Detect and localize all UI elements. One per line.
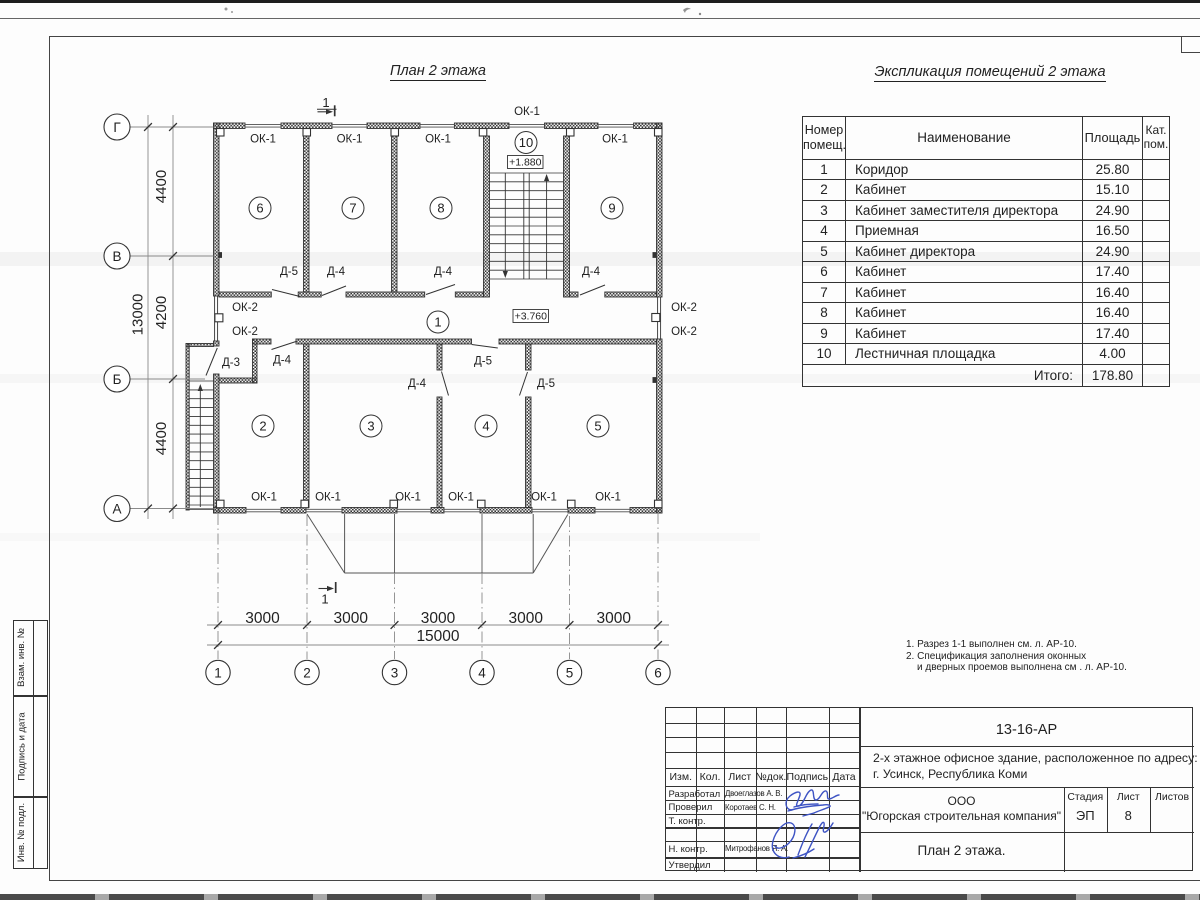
svg-text:6: 6 bbox=[654, 665, 662, 680]
svg-text:ОК-2: ОК-2 bbox=[671, 302, 697, 314]
svg-text:4400: 4400 bbox=[153, 170, 170, 203]
svg-text:2: 2 bbox=[259, 419, 266, 434]
svg-text:13000: 13000 bbox=[130, 294, 147, 336]
svg-text:+1.880: +1.880 bbox=[509, 157, 542, 169]
svg-text:3000: 3000 bbox=[596, 610, 631, 627]
svg-text:ОК-2: ОК-2 bbox=[232, 326, 258, 338]
svg-text:В: В bbox=[112, 249, 121, 264]
svg-text:6: 6 bbox=[256, 201, 263, 216]
svg-text:1: 1 bbox=[434, 315, 441, 330]
svg-text:3000: 3000 bbox=[508, 610, 543, 627]
svg-text:Г: Г bbox=[113, 120, 121, 135]
svg-text:Д-3: Д-3 bbox=[222, 357, 240, 369]
svg-text:ОК-1: ОК-1 bbox=[514, 106, 540, 118]
svg-text:Д-4: Д-4 bbox=[273, 355, 292, 367]
svg-text:5: 5 bbox=[594, 419, 601, 434]
svg-text:Д-5: Д-5 bbox=[474, 356, 492, 368]
svg-text:ОК-1: ОК-1 bbox=[251, 492, 277, 504]
svg-text:3000: 3000 bbox=[333, 610, 368, 627]
svg-text:ОК-1: ОК-1 bbox=[337, 134, 363, 146]
svg-text:ОК-1: ОК-1 bbox=[425, 134, 451, 146]
svg-text:3000: 3000 bbox=[421, 610, 456, 627]
svg-text:2: 2 bbox=[303, 665, 311, 680]
svg-text:Б: Б bbox=[113, 372, 122, 387]
svg-text:ОК-1: ОК-1 bbox=[250, 134, 276, 146]
svg-text:3: 3 bbox=[367, 419, 374, 434]
svg-text:ОК-1: ОК-1 bbox=[531, 492, 557, 504]
svg-text:1: 1 bbox=[214, 665, 222, 680]
svg-text:ОК-1: ОК-1 bbox=[395, 492, 421, 504]
svg-text:Д-4: Д-4 bbox=[434, 266, 453, 278]
svg-text:9: 9 bbox=[608, 201, 615, 216]
svg-text:7: 7 bbox=[349, 201, 356, 216]
svg-text:1: 1 bbox=[321, 592, 328, 607]
svg-text:А: А bbox=[112, 501, 121, 516]
svg-text:Д-4: Д-4 bbox=[582, 266, 601, 278]
svg-text:15000: 15000 bbox=[416, 628, 459, 645]
svg-text:ОК-1: ОК-1 bbox=[448, 492, 474, 504]
svg-text:Д-4: Д-4 bbox=[327, 266, 346, 278]
svg-text:5: 5 bbox=[566, 665, 574, 680]
svg-text:+3.760: +3.760 bbox=[515, 311, 548, 323]
svg-text:ОК-1: ОК-1 bbox=[602, 134, 628, 146]
svg-text:4200: 4200 bbox=[153, 296, 170, 329]
svg-text:ОК-2: ОК-2 bbox=[232, 302, 258, 314]
svg-text:10: 10 bbox=[519, 135, 533, 150]
svg-text:Д-4: Д-4 bbox=[408, 378, 427, 390]
svg-text:4: 4 bbox=[482, 419, 489, 434]
svg-text:1: 1 bbox=[322, 95, 329, 110]
svg-text:ОК-1: ОК-1 bbox=[315, 492, 341, 504]
svg-text:8: 8 bbox=[437, 201, 444, 216]
svg-text:4400: 4400 bbox=[153, 422, 170, 455]
svg-text:3000: 3000 bbox=[245, 610, 280, 627]
svg-text:ОК-2: ОК-2 bbox=[671, 326, 697, 338]
svg-text:3: 3 bbox=[391, 665, 399, 680]
svg-text:Д-5: Д-5 bbox=[537, 378, 555, 390]
svg-text:ОК-1: ОК-1 bbox=[595, 492, 621, 504]
svg-text:Д-5: Д-5 bbox=[280, 266, 298, 278]
svg-text:4: 4 bbox=[478, 665, 486, 680]
